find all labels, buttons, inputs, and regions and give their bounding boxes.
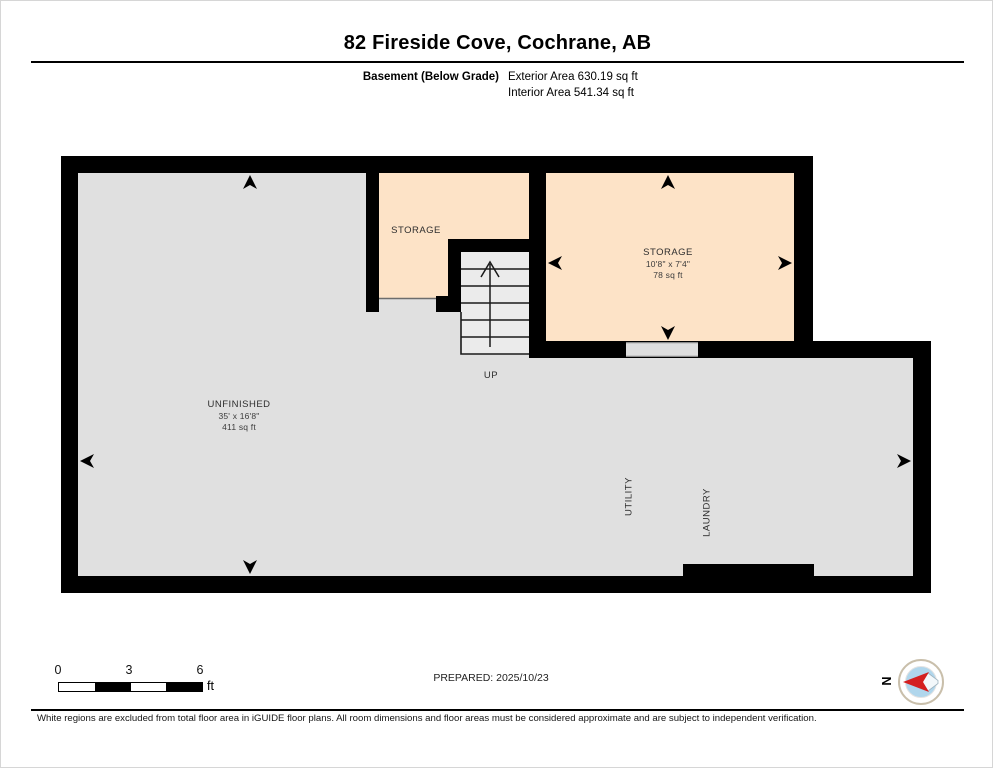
scale-bar [58,682,203,692]
room-label-storage-left: STORAGE [356,225,476,237]
room-area: 78 sq ft [595,270,741,281]
floorplan-drawing [1,1,993,768]
room-label-unfinished: UNFINISHED 35' x 16'8" 411 sq ft [166,399,312,433]
scale-segment [59,683,95,691]
wall-stair-storage [529,156,546,358]
footer-divider [31,709,964,711]
scale-unit-label: ft [207,679,214,693]
prepared-date: PREPARED: 2025/10/23 [381,672,601,684]
scale-tick-6: 6 [188,663,212,677]
compass-icon [899,660,943,704]
scale-segment [166,683,202,691]
wall-storage-left [366,173,379,312]
scale-tick-3: 3 [117,663,141,677]
room-label-storage-right: STORAGE 10'8" x 7'4" 78 sq ft [595,247,741,281]
floorplan-page: 82 Fireside Cove, Cochrane, AB Basement … [0,0,993,768]
room-label-laundry: LAUNDRY [702,483,713,543]
compass-north-label: N [879,673,893,689]
room-dimensions: 10'8" x 7'4" [595,259,741,270]
scale-tick-0: 0 [46,663,70,677]
door-threshold-storage-right [626,342,698,357]
room-area: 411 sq ft [166,422,312,433]
room-dimensions: 35' x 16'8" [166,411,312,422]
stairs-up-label: UP [471,370,511,381]
scale-segment [95,683,131,691]
room-name: STORAGE [595,247,741,259]
wall-bottom-bump [683,564,814,593]
disclaimer-text: White regions are excluded from total fl… [37,713,967,724]
room-name: STORAGE [356,225,476,237]
scale-segment [131,683,167,691]
room-label-utility: UTILITY [624,467,635,527]
room-name: UNFINISHED [166,399,312,411]
wall-stub-storage-left [436,296,461,312]
wall-stair-top [448,239,546,252]
